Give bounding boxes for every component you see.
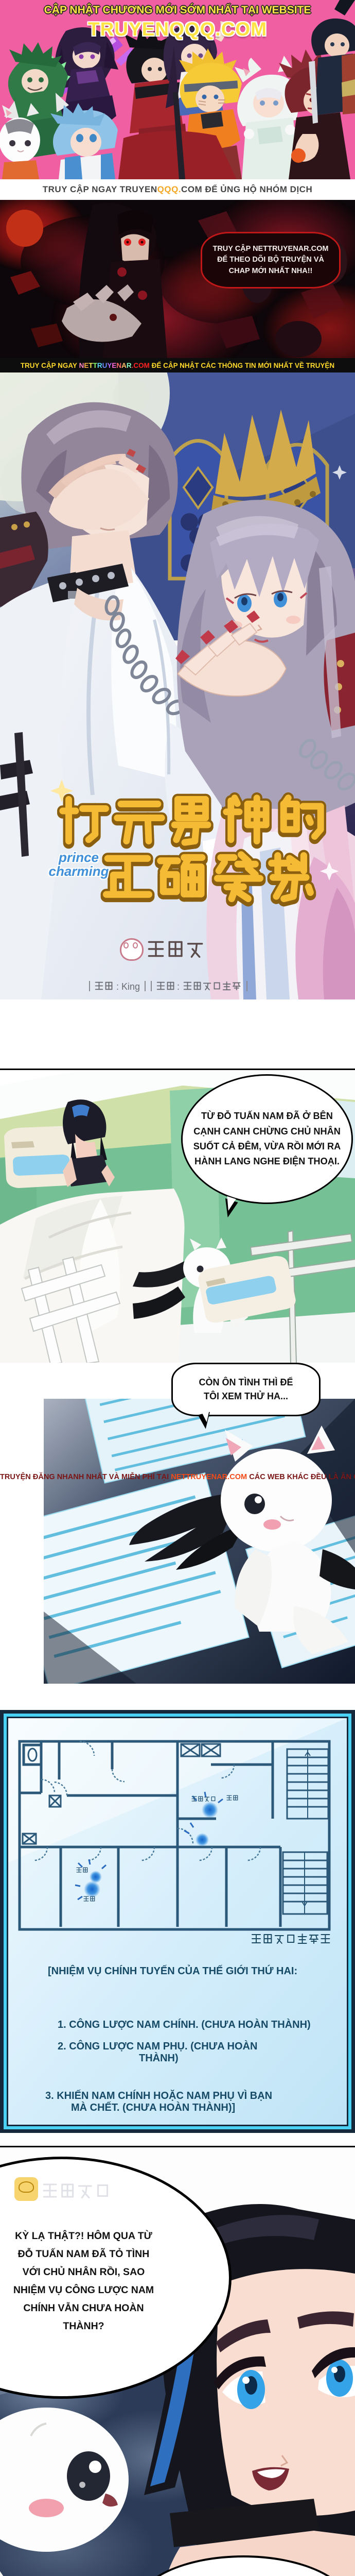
svg-text:: King: : King xyxy=(116,981,140,992)
svg-text::: : xyxy=(177,981,180,992)
